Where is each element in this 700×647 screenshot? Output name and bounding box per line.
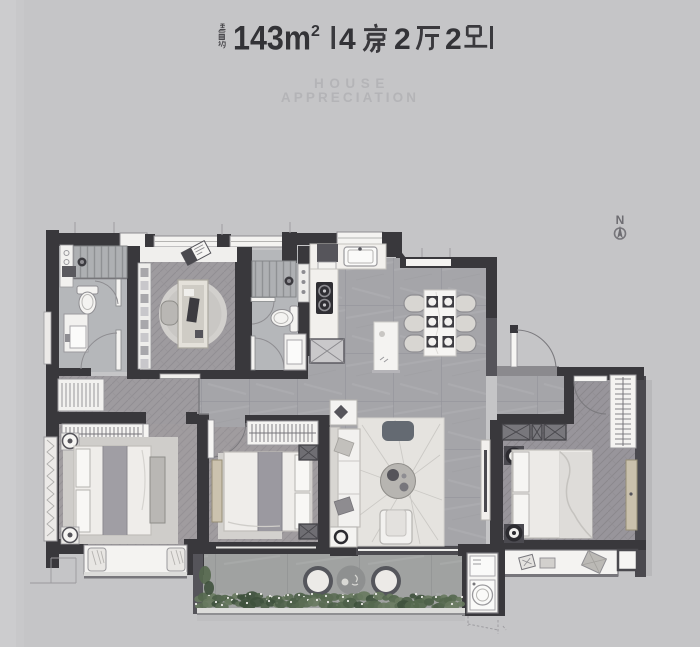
svg-text:APPRECIATION: APPRECIATION — [281, 90, 419, 105]
svg-text:2: 2 — [394, 23, 411, 56]
svg-text:143m: 143m — [233, 20, 311, 58]
svg-text:2: 2 — [311, 23, 320, 40]
svg-text:2: 2 — [445, 23, 462, 56]
svg-text:N: N — [616, 213, 625, 227]
svg-text:4: 4 — [339, 23, 356, 56]
svg-text:HOUSE: HOUSE — [314, 76, 390, 91]
